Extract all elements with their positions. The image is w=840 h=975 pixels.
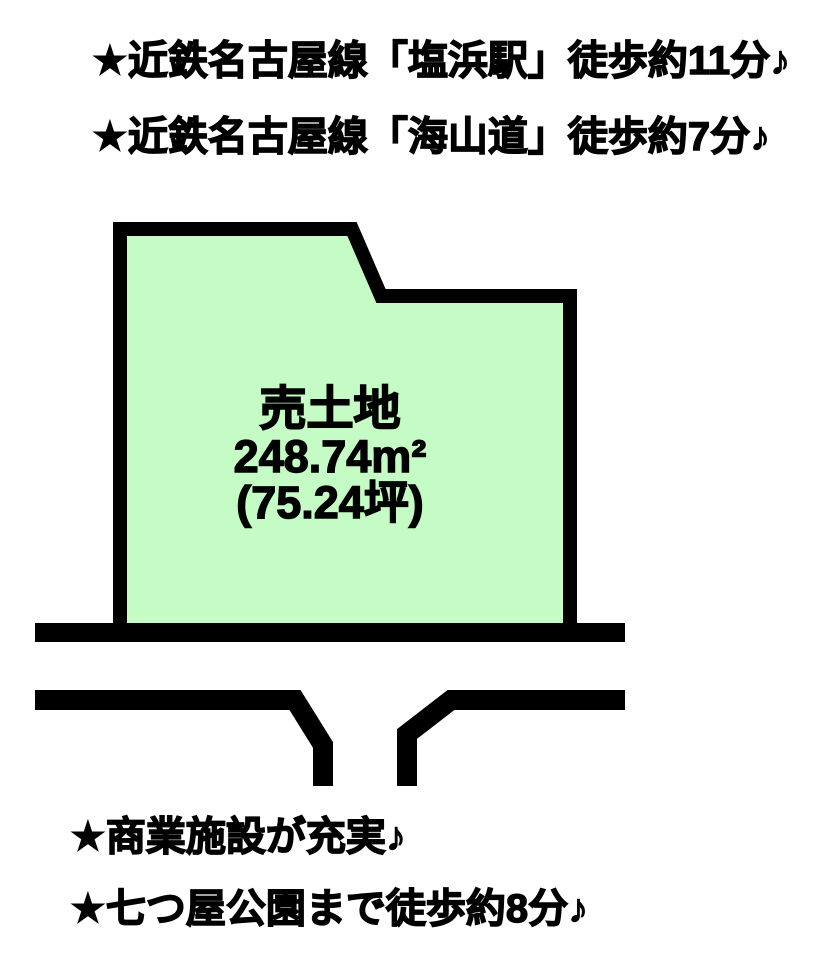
- side-road-right-edge: [407, 700, 625, 786]
- side-road-left-edge: [35, 700, 323, 786]
- site-plan-flyer: ★近鉄名古屋線「塩浜駅」徒歩約11分♪ ★近鉄名古屋線「海山道」徒歩約7分♪ 売…: [0, 0, 840, 975]
- plot-area-tsubo: (75.24坪): [110, 480, 550, 526]
- feature-note-park: ★七つ屋公園まで徒歩約8分♪: [70, 886, 588, 932]
- front-road-edge-line: [35, 623, 625, 642]
- plot-labels: 売土地 248.74m² (75.24坪): [110, 384, 550, 526]
- plot-title: 売土地: [110, 384, 550, 434]
- feature-note-shopping: ★商業施設が充実♪: [70, 814, 406, 860]
- plot-area-m2: 248.74m²: [110, 434, 550, 480]
